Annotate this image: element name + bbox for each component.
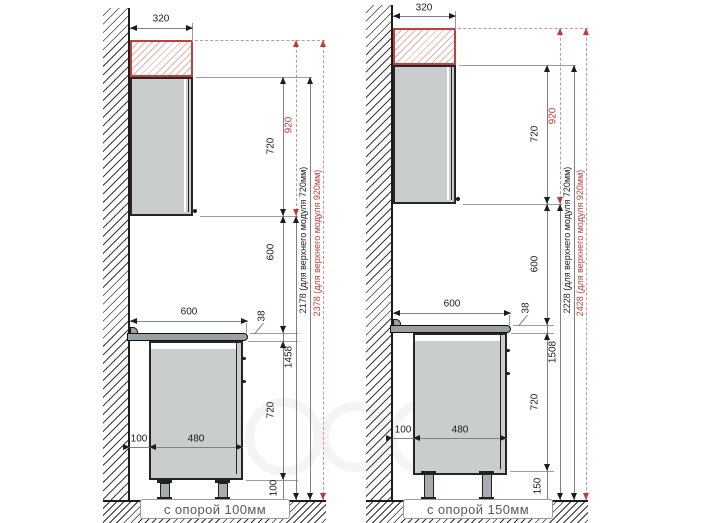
dim-600-label: 600 bbox=[181, 307, 198, 318]
countertop bbox=[127, 333, 248, 341]
dim-leg-100-label: 100 bbox=[269, 480, 280, 497]
arrow bbox=[571, 65, 577, 72]
arrow bbox=[307, 77, 313, 84]
dim-100-label: 100 bbox=[395, 425, 412, 436]
ext-line-tall-top bbox=[458, 28, 588, 29]
dim-leg-150-label: 150 bbox=[533, 478, 544, 495]
dim-line-320 bbox=[130, 28, 193, 29]
dim-100-label: 100 bbox=[131, 434, 148, 445]
dim-upper-720-label: 720 bbox=[266, 138, 277, 155]
ext-line-tall-top bbox=[195, 40, 325, 41]
arrow bbox=[583, 493, 589, 500]
dim-2178-label: 2178 (для верхнего модуля 720мм) bbox=[298, 167, 308, 314]
arrow bbox=[557, 493, 563, 500]
dim-line-100-480 bbox=[126, 447, 243, 448]
dim-line-1508 bbox=[560, 204, 561, 500]
drawer-knob bbox=[506, 372, 510, 375]
wall-hatch bbox=[103, 8, 129, 500]
dim-1458-label: 1458 bbox=[284, 346, 295, 368]
base-front-line bbox=[500, 335, 501, 469]
arrow bbox=[186, 25, 193, 31]
arrow bbox=[393, 13, 400, 19]
caption-box: с опорой 100мм bbox=[140, 499, 290, 519]
ext-line-counter-top bbox=[250, 333, 298, 334]
arrow bbox=[293, 493, 299, 500]
dim-38-label: 38 bbox=[521, 302, 532, 313]
ext-line-upper-top bbox=[196, 77, 312, 78]
leg bbox=[482, 474, 492, 499]
dim-320-label: 320 bbox=[416, 3, 433, 14]
dim-base-720-label: 720 bbox=[266, 402, 277, 419]
drawer-knob bbox=[506, 349, 510, 352]
arrow bbox=[393, 310, 400, 316]
ext-line-upper-top bbox=[459, 65, 576, 66]
arrow bbox=[130, 318, 137, 324]
arrow bbox=[544, 204, 550, 211]
arrow bbox=[544, 333, 550, 340]
diagram-canvas: 320 600 100 480 720 600 38 720 100 920 bbox=[0, 0, 702, 523]
dim-upper-720-label: 720 bbox=[530, 126, 541, 143]
dim-2378-label: 2378 (для верхнего модуля 920мм) bbox=[312, 170, 322, 317]
arrow bbox=[557, 28, 563, 35]
arrow bbox=[583, 28, 589, 35]
dim-2428-label: 2428 (для верхнего модуля 920мм) bbox=[575, 170, 585, 317]
dim-line-100-480 bbox=[389, 438, 507, 439]
arrow bbox=[544, 464, 550, 471]
dim-line-320 bbox=[393, 16, 456, 17]
dim-chain-line bbox=[283, 77, 284, 500]
arrow bbox=[449, 13, 456, 19]
arrow bbox=[544, 197, 550, 204]
upper-door-line bbox=[451, 67, 452, 200]
countertop bbox=[390, 325, 511, 333]
dim-38-label: 38 bbox=[257, 310, 268, 321]
arrow bbox=[130, 25, 137, 31]
arrow bbox=[280, 216, 286, 223]
upper-door-gap bbox=[184, 79, 186, 212]
caption-text: с опорой 100мм bbox=[164, 502, 266, 517]
arrow bbox=[280, 473, 286, 480]
dim-480-label: 480 bbox=[188, 434, 205, 445]
caption-box: с опорой 150мм bbox=[403, 499, 553, 519]
dim-920-label: 920 bbox=[284, 117, 295, 134]
dim-600-label: 600 bbox=[444, 299, 461, 310]
arrow bbox=[320, 493, 326, 500]
watermark bbox=[245, 398, 323, 476]
arrow bbox=[413, 435, 420, 441]
upper-door-gap bbox=[447, 67, 449, 200]
arrow bbox=[386, 435, 393, 441]
tall-upper-module-outline bbox=[130, 40, 193, 77]
dim-line-1458 bbox=[296, 216, 297, 500]
dim-gap-600-label: 600 bbox=[530, 256, 541, 273]
dim-line-600 bbox=[130, 321, 248, 322]
dim-line-2378 bbox=[323, 40, 324, 500]
dim-480-label: 480 bbox=[452, 425, 469, 436]
ext-line-counter-bottom bbox=[248, 341, 298, 342]
caption-text: с опорой 150мм bbox=[427, 502, 529, 517]
dim-line-920 bbox=[560, 28, 561, 204]
arrow bbox=[280, 326, 286, 333]
drawer-knob bbox=[242, 357, 246, 360]
dim-320-label: 320 bbox=[153, 14, 170, 25]
dim-920-label: 920 bbox=[548, 108, 559, 125]
arrow bbox=[149, 444, 156, 450]
dim-1508-label: 1508 bbox=[548, 341, 559, 363]
arrow bbox=[544, 65, 550, 72]
arrow bbox=[293, 40, 299, 47]
base-top-gap bbox=[151, 343, 237, 349]
arrow bbox=[236, 444, 243, 450]
upper-door-line bbox=[188, 79, 189, 212]
drawer-knob bbox=[242, 380, 246, 383]
arrow bbox=[123, 444, 130, 450]
arrow bbox=[307, 493, 313, 500]
wall-hatch bbox=[366, 5, 392, 500]
dim-line-920 bbox=[296, 40, 297, 216]
arrow bbox=[241, 318, 248, 324]
base-cabinet bbox=[413, 333, 507, 475]
dim-gap-600-label: 600 bbox=[266, 244, 277, 261]
arrow bbox=[504, 310, 511, 316]
dim-line-2178 bbox=[310, 77, 311, 500]
base-front-line bbox=[236, 343, 237, 474]
arrow bbox=[320, 40, 326, 47]
leg bbox=[424, 474, 434, 499]
dim-2228-label: 2228 (для верхнего модуля 720мм) bbox=[562, 167, 572, 314]
dim-base-720-label: 720 bbox=[530, 394, 541, 411]
arrow bbox=[280, 209, 286, 216]
base-cabinet bbox=[149, 341, 243, 480]
dim-line-2428 bbox=[586, 28, 587, 500]
arrow bbox=[280, 77, 286, 84]
arrow bbox=[571, 493, 577, 500]
upper-door-knob bbox=[456, 197, 460, 201]
dim-line-600 bbox=[393, 313, 511, 314]
tall-upper-module-outline bbox=[393, 28, 456, 65]
ext-tick-600 bbox=[509, 315, 510, 325]
arrow bbox=[500, 435, 507, 441]
base-top-gap bbox=[415, 335, 501, 341]
dim-chain-line bbox=[547, 65, 548, 500]
upper-door-knob bbox=[193, 209, 197, 213]
arrow bbox=[544, 318, 550, 325]
ext-tick-600 bbox=[246, 323, 247, 333]
